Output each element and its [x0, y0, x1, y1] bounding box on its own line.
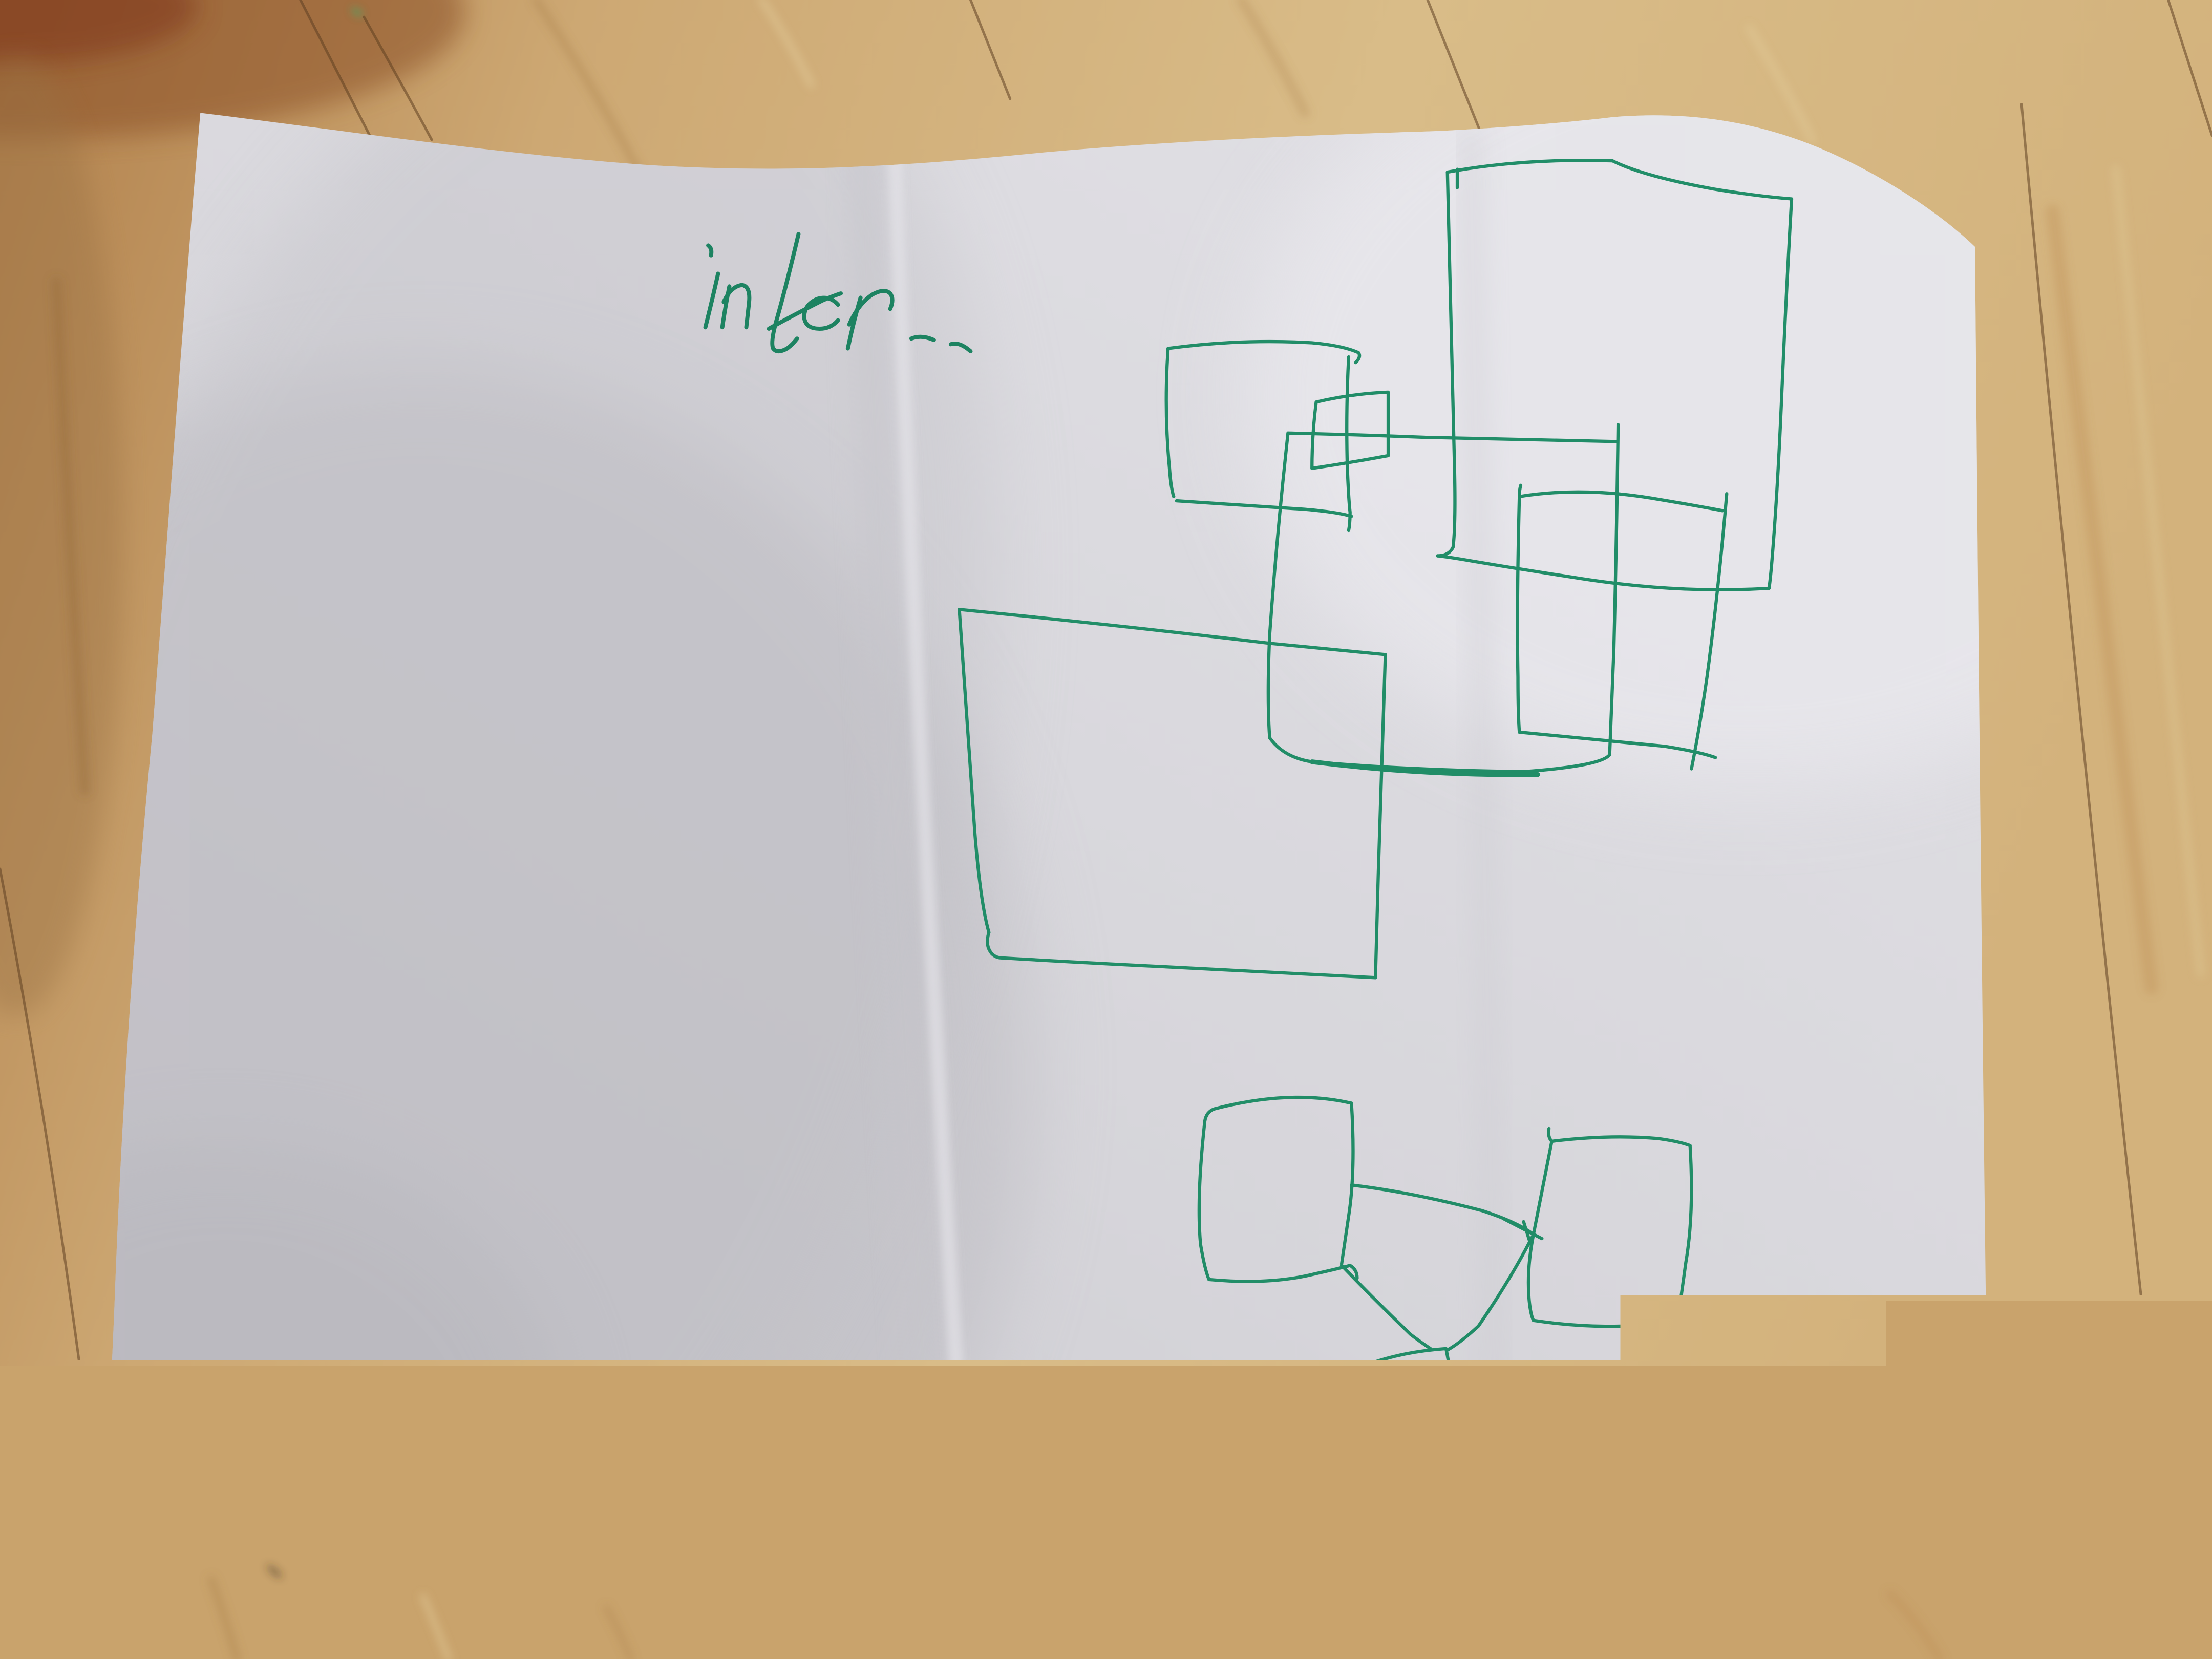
- photo-scene: inter..: [0, 0, 2212, 1659]
- marker-stroke: [1518, 497, 1520, 732]
- photo-canvas: inter..: [0, 0, 2212, 1659]
- paper-sheet: [0, 0, 2212, 1659]
